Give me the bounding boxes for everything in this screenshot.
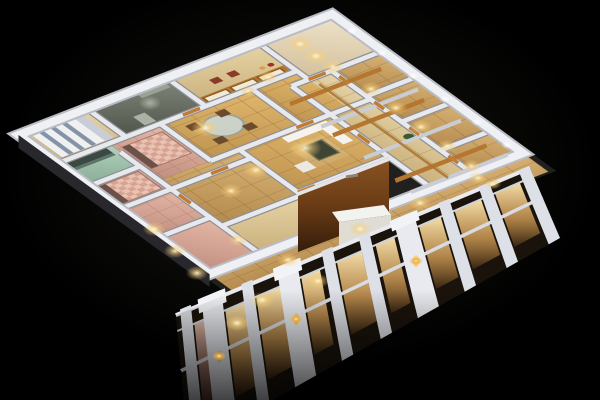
ceiling-light-glow: [468, 172, 488, 185]
ceiling-light-glow: [303, 48, 328, 64]
ceiling-light-glow: [439, 95, 450, 102]
ceiling-light-glow: [220, 184, 242, 198]
ceiling-light-glow: [349, 222, 371, 236]
ceiling-light-glow: [228, 234, 248, 247]
ceiling-light-glow: [376, 49, 387, 56]
ceiling-light-glow: [277, 253, 299, 267]
ceiling-light-glow: [258, 71, 278, 84]
ceiling-light-glow: [191, 119, 219, 137]
ceiling-light-glow: [346, 27, 357, 34]
ceiling-light-glow: [243, 162, 268, 178]
ceiling-light-glow: [471, 118, 482, 125]
ceiling-light-glow: [410, 120, 432, 134]
floorplan-render: [0, 0, 600, 400]
ceiling-light-glow: [288, 137, 322, 159]
ceiling-light-glow: [224, 315, 249, 331]
ceiling-light-glow: [249, 292, 274, 308]
ceiling-light-glow: [322, 60, 344, 74]
ceiling-light-glow: [461, 160, 481, 173]
lamp-glow: [289, 315, 303, 324]
ceiling-light-glow: [139, 96, 161, 110]
ceiling-light-glow: [143, 222, 165, 236]
lamp-glow: [409, 257, 423, 266]
ceiling-light-glow: [360, 82, 382, 96]
ceiling-light-glow: [409, 196, 431, 210]
lamp-glow: [212, 352, 226, 361]
screenshot-stage: [0, 0, 600, 400]
ceiling-light-glow: [407, 72, 418, 79]
ceiling-light-glow: [437, 140, 457, 153]
ceiling-light-glow: [164, 244, 186, 258]
ceiling-light-glow: [186, 266, 208, 280]
ceiling-light-glow: [501, 141, 512, 148]
ceiling-light-glow: [385, 101, 407, 115]
ceiling-light-glow: [307, 274, 329, 288]
ceiling-light-glow: [240, 86, 257, 97]
